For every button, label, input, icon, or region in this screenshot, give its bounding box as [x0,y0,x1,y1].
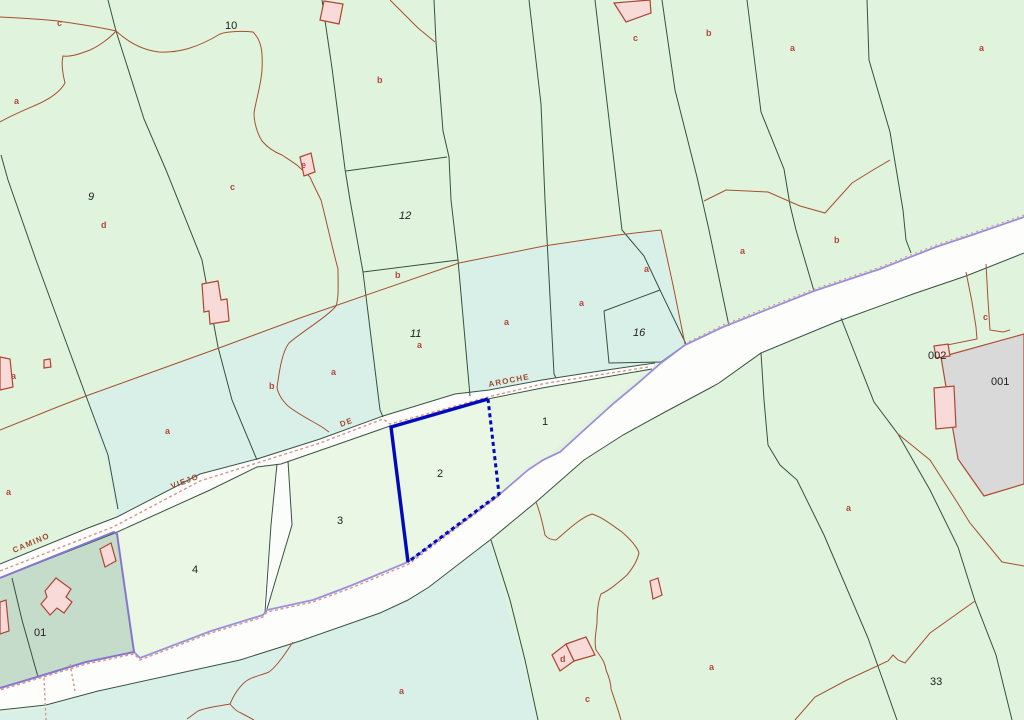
svg-text:b: b [395,270,401,280]
svg-text:1: 1 [542,416,548,428]
svg-text:c: c [633,33,638,43]
svg-text:001: 001 [991,376,1009,388]
svg-text:4: 4 [192,564,198,576]
svg-text:01: 01 [34,627,46,639]
svg-text:b: b [834,235,840,245]
svg-text:c: c [230,182,235,192]
svg-text:b: b [706,28,712,38]
svg-text:c: c [983,312,988,322]
svg-text:b: b [269,381,275,391]
svg-text:d: d [560,654,566,664]
svg-text:2: 2 [437,468,443,480]
svg-text:c: c [585,694,590,704]
svg-text:002: 002 [928,350,946,362]
svg-text:c: c [57,18,62,28]
svg-text:e: e [301,160,306,170]
svg-text:33: 33 [930,676,942,688]
svg-text:b: b [377,75,383,85]
svg-text:3: 3 [337,515,343,527]
svg-text:10: 10 [225,20,237,32]
svg-text:d: d [101,220,107,230]
svg-text:11: 11 [410,328,421,340]
svg-text:16: 16 [633,327,646,339]
svg-text:12: 12 [399,210,411,222]
svg-text:9: 9 [88,191,94,203]
